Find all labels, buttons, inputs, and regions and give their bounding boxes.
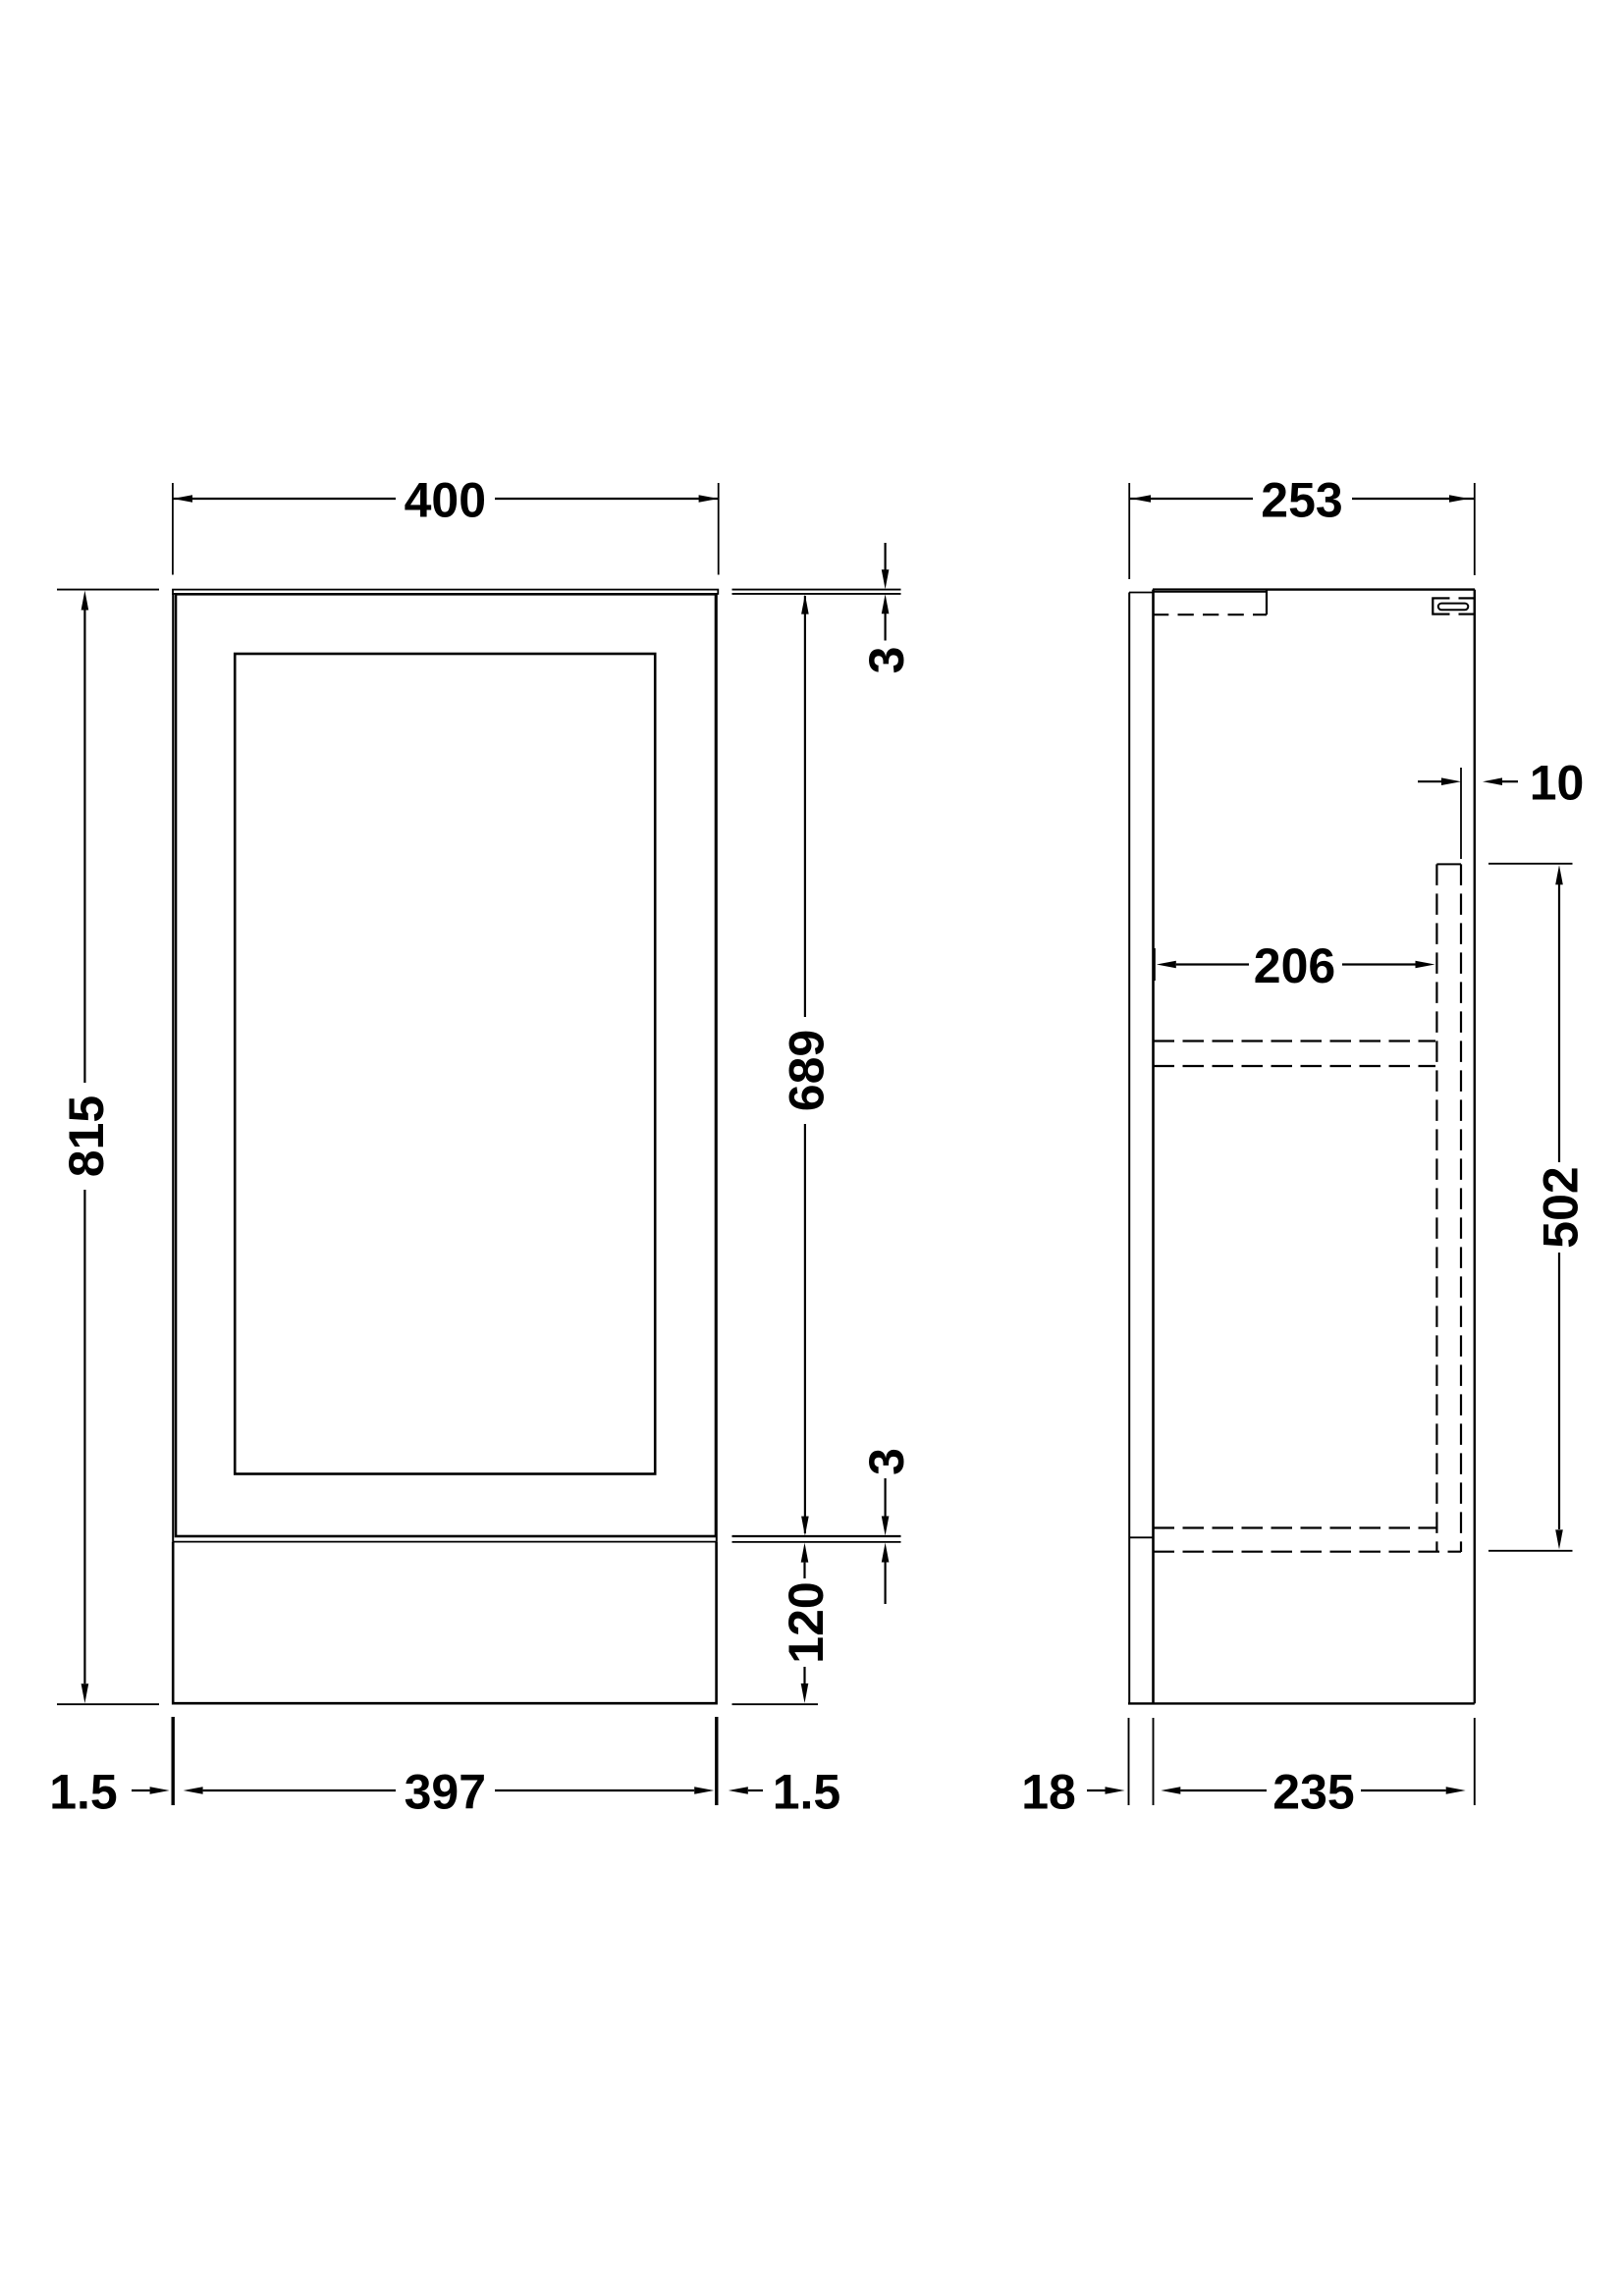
- svg-text:18: 18: [1021, 1764, 1076, 1819]
- svg-text:1.5: 1.5: [49, 1764, 118, 1819]
- svg-text:502: 502: [1534, 1166, 1589, 1248]
- svg-text:10: 10: [1530, 755, 1585, 810]
- svg-text:253: 253: [1261, 472, 1342, 527]
- svg-text:689: 689: [780, 1030, 835, 1111]
- svg-text:1.5: 1.5: [773, 1764, 841, 1819]
- svg-text:400: 400: [405, 472, 486, 527]
- svg-text:815: 815: [59, 1095, 114, 1177]
- svg-text:3: 3: [859, 647, 914, 674]
- svg-text:3: 3: [859, 1448, 914, 1475]
- svg-text:397: 397: [405, 1764, 486, 1819]
- svg-text:206: 206: [1254, 938, 1335, 993]
- svg-text:235: 235: [1272, 1764, 1354, 1819]
- svg-text:120: 120: [779, 1581, 834, 1663]
